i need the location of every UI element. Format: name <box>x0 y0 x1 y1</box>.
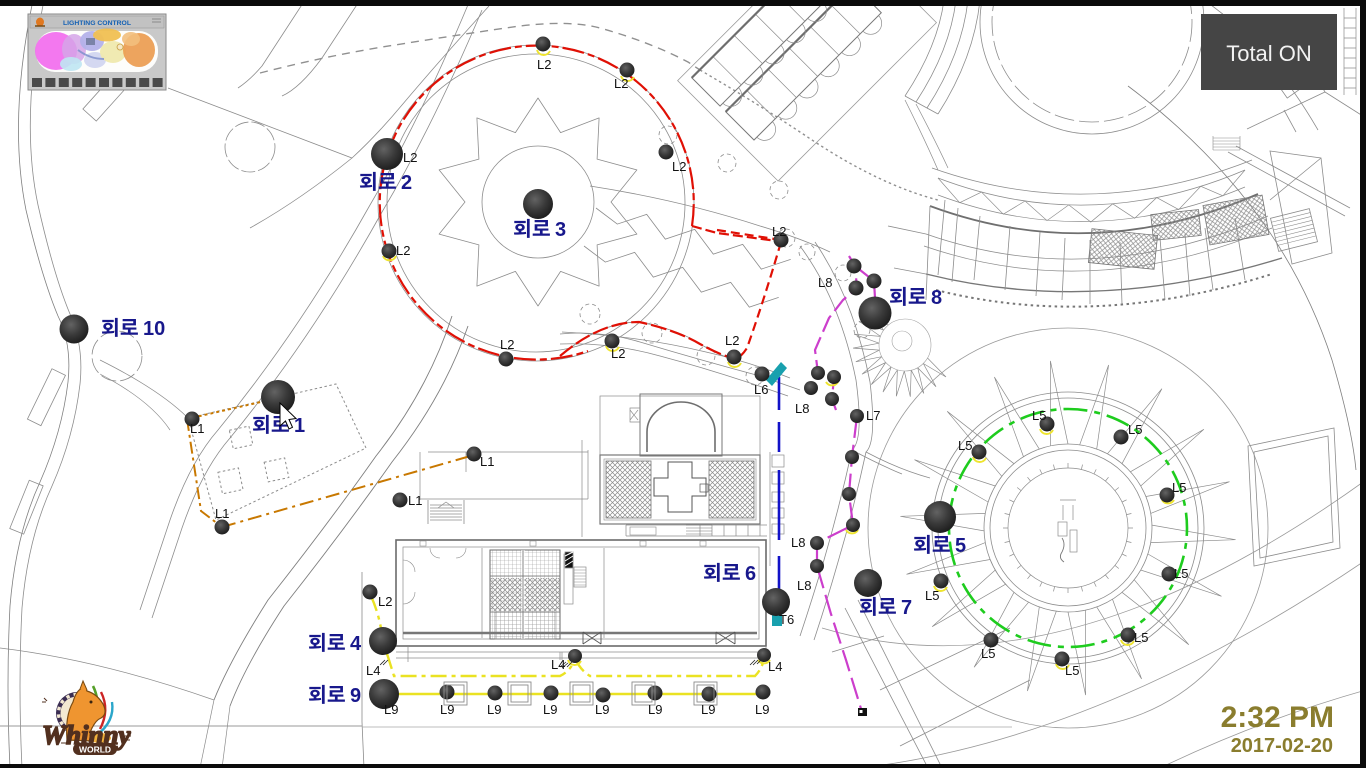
svg-text:L5: L5 <box>1065 663 1079 678</box>
svg-text:L1: L1 <box>408 493 422 508</box>
svg-text:L9: L9 <box>384 702 398 717</box>
svg-text:L5: L5 <box>981 646 995 661</box>
svg-text:L2: L2 <box>725 333 739 348</box>
svg-text:L5: L5 <box>925 588 939 603</box>
svg-text:L5: L5 <box>1032 408 1046 423</box>
svg-text:6: 6 <box>745 563 756 585</box>
svg-text:5: 5 <box>955 535 966 557</box>
svg-text:L9: L9 <box>701 702 715 717</box>
svg-text:L5: L5 <box>1174 566 1188 581</box>
svg-text:L7: L7 <box>866 408 880 423</box>
svg-text:L9: L9 <box>543 702 557 717</box>
svg-text:L5: L5 <box>1134 630 1148 645</box>
svg-text:L8: L8 <box>795 401 809 416</box>
svg-text:7: 7 <box>901 597 912 619</box>
svg-text:L5: L5 <box>1172 480 1186 495</box>
svg-text:Total ON: Total ON <box>1226 41 1312 66</box>
svg-text:LIGHTING CONTROL: LIGHTING CONTROL <box>63 20 131 27</box>
svg-text:10: 10 <box>143 318 165 340</box>
svg-text:L4: L4 <box>551 657 565 672</box>
svg-text:L9: L9 <box>440 702 454 717</box>
svg-text:L2: L2 <box>537 57 551 72</box>
svg-text:4: 4 <box>350 633 362 655</box>
svg-text:L8: L8 <box>791 535 805 550</box>
svg-text:L8: L8 <box>797 578 811 593</box>
svg-text:L1: L1 <box>480 454 494 469</box>
svg-text:L4: L4 <box>366 663 380 678</box>
svg-text:L2: L2 <box>403 150 417 165</box>
svg-text:2: 2 <box>401 172 412 194</box>
svg-text:WORLD: WORLD <box>79 745 111 755</box>
svg-text:L5: L5 <box>1128 422 1142 437</box>
svg-text:L4: L4 <box>768 659 782 674</box>
svg-text:2:32 PM: 2:32 PM <box>1221 701 1334 734</box>
svg-text:L2: L2 <box>772 224 786 239</box>
svg-text:L8: L8 <box>818 275 832 290</box>
svg-text:L6: L6 <box>754 382 768 397</box>
svg-text:L1: L1 <box>215 506 229 521</box>
svg-text:L2: L2 <box>396 243 410 258</box>
svg-text:L5: L5 <box>958 438 972 453</box>
svg-text:L9: L9 <box>487 702 501 717</box>
svg-text:8: 8 <box>931 287 942 309</box>
svg-text:L2: L2 <box>614 76 628 91</box>
svg-text:9: 9 <box>350 685 361 707</box>
svg-text:L2: L2 <box>500 337 514 352</box>
svg-text:L9: L9 <box>595 702 609 717</box>
svg-text:L2: L2 <box>378 594 392 609</box>
svg-text:L9: L9 <box>648 702 662 717</box>
svg-text:T6: T6 <box>779 612 794 627</box>
svg-text:L9: L9 <box>755 702 769 717</box>
svg-text:L2: L2 <box>672 159 686 174</box>
svg-text:2017-02-20: 2017-02-20 <box>1231 735 1333 757</box>
svg-text:L1: L1 <box>190 421 204 436</box>
svg-text:3: 3 <box>555 219 566 241</box>
svg-text:L2: L2 <box>611 346 625 361</box>
